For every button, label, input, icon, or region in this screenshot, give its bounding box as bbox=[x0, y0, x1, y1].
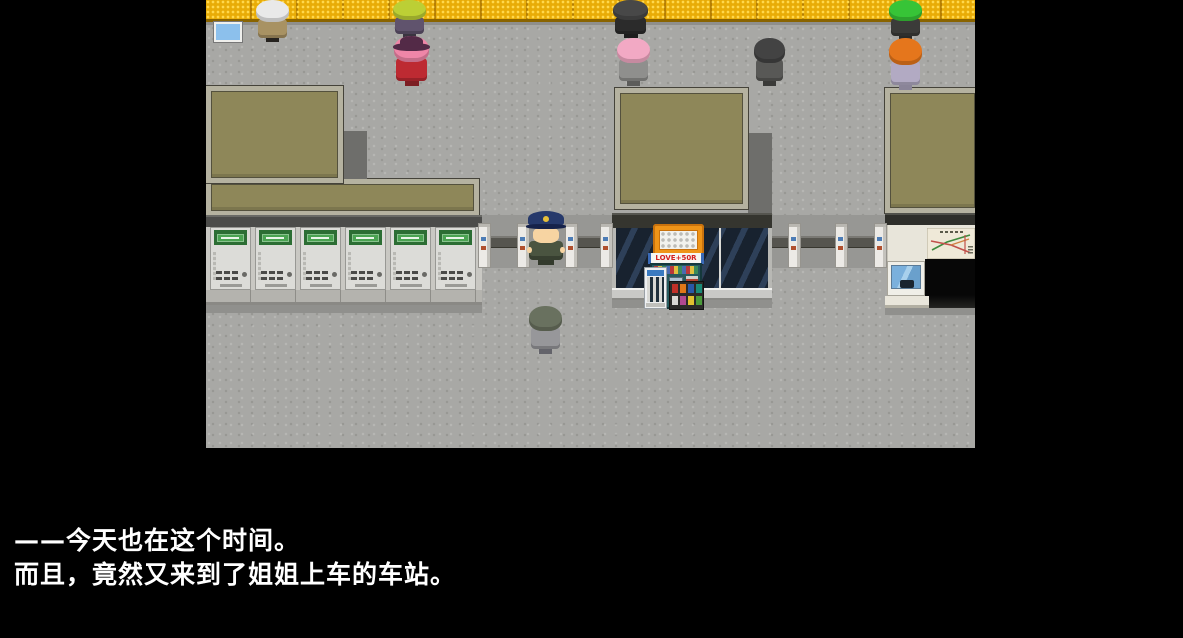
npc-black-coat[interactable] bbox=[613, 0, 648, 38]
machine-button[interactable] bbox=[261, 277, 267, 280]
machine-tray bbox=[355, 284, 377, 287]
npc-orange-hair[interactable] bbox=[889, 38, 922, 90]
machine-button[interactable] bbox=[322, 271, 328, 274]
fridge-base bbox=[646, 303, 665, 307]
machine-tray bbox=[310, 284, 332, 287]
machine-coin-slot[interactable] bbox=[377, 272, 382, 277]
yellow-station-wall bbox=[206, 0, 975, 22]
machine-tray bbox=[445, 284, 467, 287]
glass-mullion bbox=[719, 228, 721, 288]
gate-indicator-blue bbox=[520, 237, 525, 241]
game-window: LOVE+50R ——今天也在这个时间。 而且，竟然又来到了姐姐上车的车站。 bbox=[0, 0, 1183, 638]
gate-indicator-blue bbox=[838, 237, 843, 241]
npc-white-spiky[interactable] bbox=[256, 0, 289, 42]
machine-tray bbox=[265, 284, 287, 287]
machine-button[interactable] bbox=[216, 271, 222, 274]
fridge-header bbox=[647, 270, 664, 276]
right-building-entrance[interactable] bbox=[925, 259, 975, 312]
npc-chartreuse[interactable] bbox=[393, 0, 426, 38]
machine-button[interactable] bbox=[269, 271, 275, 274]
gate-indicator-red bbox=[877, 246, 882, 250]
sprite-hair bbox=[256, 0, 289, 22]
left-building-roof-upper bbox=[206, 86, 343, 183]
station-attendant[interactable] bbox=[527, 211, 565, 265]
gate-indicator-red bbox=[520, 246, 525, 250]
npc-green-hair[interactable] bbox=[889, 0, 922, 40]
gate-indicator-blue bbox=[568, 237, 573, 241]
kiosk-drink-fridge[interactable] bbox=[644, 267, 667, 309]
machine-button[interactable] bbox=[306, 277, 312, 280]
machine-button[interactable] bbox=[449, 277, 455, 280]
machine-button[interactable] bbox=[359, 277, 365, 280]
machine-button[interactable] bbox=[224, 277, 230, 280]
machine-button[interactable] bbox=[457, 277, 463, 280]
machine-slot-rail bbox=[348, 252, 351, 280]
gate-cap bbox=[479, 224, 490, 227]
ticket-machine[interactable] bbox=[255, 227, 296, 290]
machine-coin-slot[interactable] bbox=[467, 272, 472, 277]
machine-button[interactable] bbox=[261, 271, 267, 274]
ticket-machine[interactable] bbox=[345, 227, 386, 290]
npc-hat-lady[interactable] bbox=[394, 36, 429, 86]
machine-button[interactable] bbox=[404, 271, 410, 274]
machine-sign-text bbox=[311, 237, 329, 239]
machine-button[interactable] bbox=[404, 277, 410, 280]
left-building-roof-lower bbox=[206, 179, 479, 216]
machine-button[interactable] bbox=[351, 271, 357, 274]
machine-tray bbox=[220, 284, 242, 287]
machine-sign-text bbox=[221, 237, 239, 239]
machine-counter-base bbox=[206, 290, 482, 305]
machine-sign-text bbox=[266, 237, 284, 239]
ticket-gate[interactable] bbox=[600, 223, 613, 268]
machine-slot-rail bbox=[393, 252, 396, 280]
ticket-machine[interactable] bbox=[435, 227, 476, 290]
gate-indicator-red bbox=[481, 246, 486, 250]
snack-item bbox=[696, 296, 702, 305]
ticket-machine[interactable] bbox=[300, 227, 341, 290]
ticket-gate[interactable] bbox=[874, 223, 887, 268]
ticket-gate[interactable] bbox=[478, 223, 491, 268]
gate-cap bbox=[875, 224, 886, 227]
mid-building-roof bbox=[615, 88, 748, 209]
snack-item bbox=[688, 284, 694, 293]
gate-indicator-blue bbox=[481, 237, 486, 241]
dialogue-layer[interactable]: ——今天也在这个时间。 而且，竟然又来到了姐姐上车的车站。 bbox=[0, 448, 1183, 638]
machine-button[interactable] bbox=[367, 271, 373, 274]
sprite-cap-brim bbox=[526, 224, 566, 229]
gate-cap bbox=[789, 224, 800, 227]
machine-button[interactable] bbox=[224, 271, 230, 274]
machine-sign-text bbox=[446, 237, 464, 239]
mid-building-shadow bbox=[748, 133, 772, 213]
ticket-gate[interactable] bbox=[835, 223, 848, 268]
snack-item bbox=[696, 284, 702, 293]
machine-sign-text bbox=[356, 237, 374, 239]
sprite-hair bbox=[889, 0, 922, 21]
wall-shadow bbox=[206, 22, 975, 25]
gate-cap bbox=[836, 224, 847, 227]
right-building-roof bbox=[885, 88, 975, 213]
machine-button[interactable] bbox=[441, 277, 447, 280]
machine-slot-rail bbox=[213, 252, 216, 280]
machine-sign-text bbox=[401, 237, 419, 239]
route-map-poster[interactable] bbox=[927, 228, 975, 259]
gate-indicator-red bbox=[568, 246, 573, 250]
right-facade-top-band bbox=[885, 213, 975, 225]
gate-bar bbox=[801, 236, 835, 248]
sprite-hair bbox=[613, 0, 648, 20]
player-character[interactable] bbox=[529, 306, 562, 354]
gate-indicator-red bbox=[603, 246, 608, 250]
ticket-machine[interactable] bbox=[390, 227, 431, 290]
machine-slot-rail bbox=[438, 252, 441, 280]
gate-cap bbox=[601, 224, 612, 227]
sprite-body bbox=[529, 241, 562, 260]
machine-slot-rail bbox=[258, 252, 261, 280]
snack-item bbox=[688, 296, 694, 305]
machine-button[interactable] bbox=[359, 271, 365, 274]
snack-item bbox=[680, 284, 686, 293]
machine-button[interactable] bbox=[232, 271, 238, 274]
machine-button[interactable] bbox=[441, 271, 447, 274]
left-building-shadow-block bbox=[344, 131, 367, 179]
machine-button[interactable] bbox=[396, 277, 402, 280]
right-building-window bbox=[887, 261, 925, 296]
gate-indicator-blue bbox=[791, 237, 796, 241]
sprite-face bbox=[533, 227, 559, 243]
game-viewport[interactable]: LOVE+50R bbox=[206, 0, 975, 448]
kiosk-snack-rack[interactable] bbox=[669, 281, 704, 310]
gate-indicator-blue bbox=[603, 237, 608, 241]
machine-floor-shadow bbox=[206, 305, 482, 313]
machine-button[interactable] bbox=[412, 271, 418, 274]
snack-item bbox=[672, 284, 678, 293]
ticket-machine[interactable] bbox=[210, 227, 251, 290]
machine-button[interactable] bbox=[306, 271, 312, 274]
machine-wall-top-band bbox=[206, 215, 482, 227]
machine-coin-slot[interactable] bbox=[287, 272, 292, 277]
right-building-floor-shadow bbox=[885, 308, 975, 315]
sprite-hat-crown bbox=[400, 36, 424, 47]
sprite-hair bbox=[529, 306, 562, 331]
machine-button[interactable] bbox=[269, 277, 275, 280]
dialogue-text-line-2: 而且，竟然又来到了姐姐上车的车站。 bbox=[14, 555, 456, 591]
sprite-hand-right bbox=[560, 247, 565, 253]
gate-bar bbox=[772, 236, 788, 248]
sprite-hair bbox=[754, 38, 785, 63]
ticket-gate[interactable] bbox=[565, 223, 578, 268]
kiosk-sign[interactable] bbox=[653, 224, 704, 256]
machine-button[interactable] bbox=[449, 271, 455, 274]
snack-item bbox=[680, 296, 686, 305]
gate-bar bbox=[848, 236, 874, 248]
gate-bar bbox=[491, 236, 517, 248]
machine-slot-rail bbox=[303, 252, 306, 280]
gate-cap bbox=[566, 224, 577, 227]
machine-coin-slot[interactable] bbox=[422, 272, 427, 277]
sprite-hair bbox=[889, 38, 922, 65]
machine-coin-slot[interactable] bbox=[242, 272, 247, 277]
gate-indicator-red bbox=[791, 246, 796, 250]
machine-screen[interactable] bbox=[214, 22, 242, 42]
npc-gray-bob[interactable] bbox=[754, 38, 785, 86]
sprite-hand-left bbox=[527, 247, 532, 253]
machine-button[interactable] bbox=[367, 277, 373, 280]
machine-button[interactable] bbox=[314, 277, 320, 280]
gate-indicator-blue bbox=[877, 237, 882, 241]
machine-button[interactable] bbox=[314, 271, 320, 274]
gate-bar bbox=[578, 236, 600, 248]
ticket-gate[interactable] bbox=[788, 223, 801, 268]
machine-tray bbox=[400, 284, 422, 287]
sprite-hair bbox=[617, 38, 650, 63]
machine-button[interactable] bbox=[322, 277, 328, 280]
snack-item bbox=[672, 296, 678, 305]
machine-button[interactable] bbox=[457, 271, 463, 274]
machine-button[interactable] bbox=[351, 277, 357, 280]
gate-indicator-red bbox=[838, 246, 843, 250]
kiosk-sign-lights bbox=[659, 230, 698, 250]
dialogue-text-line-1: ——今天也在这个时间。 bbox=[14, 521, 300, 557]
machine-coin-slot[interactable] bbox=[332, 272, 337, 277]
machine-button[interactable] bbox=[277, 277, 283, 280]
machine-button[interactable] bbox=[216, 277, 222, 280]
machine-button[interactable] bbox=[412, 277, 418, 280]
machine-button[interactable] bbox=[396, 271, 402, 274]
machine-button[interactable] bbox=[277, 271, 283, 274]
npc-pink-hair[interactable] bbox=[617, 38, 650, 86]
fridge-bottles bbox=[647, 277, 664, 302]
sprite-hair bbox=[393, 0, 426, 20]
machine-button[interactable] bbox=[232, 277, 238, 280]
window-sill-counter bbox=[885, 296, 929, 308]
window-object bbox=[900, 280, 914, 288]
